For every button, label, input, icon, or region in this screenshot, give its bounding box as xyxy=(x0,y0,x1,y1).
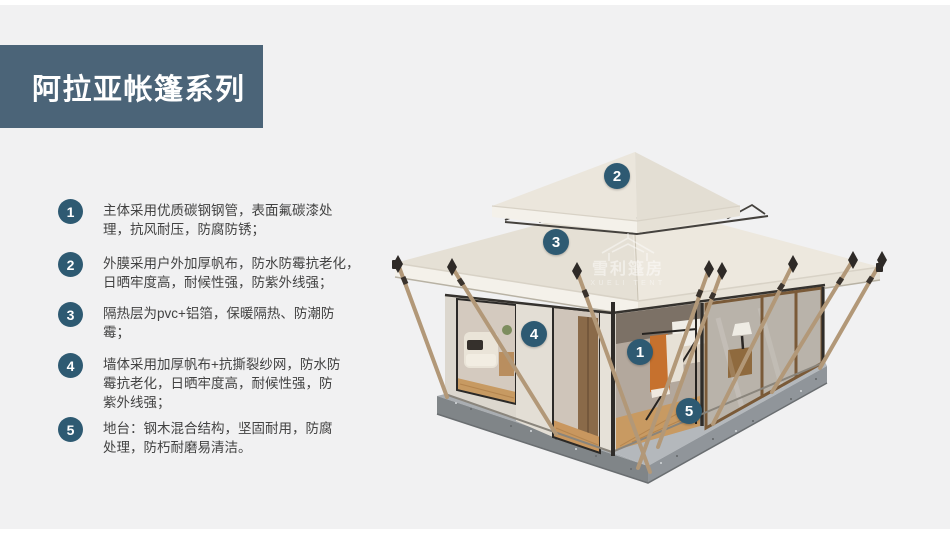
lamp-shade xyxy=(732,322,752,336)
feature-badge-3: 3 xyxy=(58,302,83,327)
feature-text-4-line-2: 霉抗老化，日晒牢度高，耐候性强，防 xyxy=(103,374,371,393)
feature-badge-4: 4 xyxy=(58,353,83,378)
feature-text-1-line-2: 理，抗风耐压，防腐防锈； xyxy=(103,220,371,239)
feature-text-5-line-2: 处理，防朽耐磨易清洁。 xyxy=(103,438,371,457)
left-window xyxy=(457,299,516,404)
left-sliding-door xyxy=(553,307,600,453)
bottom-margin-strip xyxy=(0,529,950,534)
page-title: 阿拉亚帐篷系列 xyxy=(32,66,246,108)
tent-marker-4: 4 xyxy=(521,321,547,347)
feature-text-4: 墙体采用加厚帆布+抗撕裂纱网，防水防 霉抗老化，日晒牢度高，耐候性强，防 紫外线… xyxy=(103,355,371,412)
feature-badge-5: 5 xyxy=(58,417,83,442)
tent-marker-3: 3 xyxy=(543,229,569,255)
hanging-garment-white xyxy=(666,333,684,383)
feature-text-2-line-1: 外膜采用户外加厚帆布，防水防霉抗老化， xyxy=(103,254,371,273)
feature-item-4: 4 墙体采用加厚帆布+抗撕裂纱网，防水防 霉抗老化，日晒牢度高，耐候性强，防 紫… xyxy=(58,353,371,412)
tent-marker-1: 1 xyxy=(627,339,653,365)
tent-marker-5: 5 xyxy=(676,398,702,424)
title-banner: 阿拉亚帐篷系列 xyxy=(0,45,263,128)
feature-text-4-line-3: 紫外线强； xyxy=(103,393,371,412)
feature-text-3: 隔热层为pvc+铝箔，保暖隔热、防潮防 霉； xyxy=(103,304,371,342)
top-margin-strip xyxy=(0,0,950,5)
feature-item-1: 1 主体采用优质碳钢钢管，表面氟碳漆处 理，抗风耐压，防腐防锈； xyxy=(58,199,371,239)
lamp-body xyxy=(742,336,743,349)
feature-text-3-line-1: 隔热层为pvc+铝箔，保暖隔热、防潮防 xyxy=(103,304,371,323)
plant xyxy=(502,325,512,335)
feature-badge-2: 2 xyxy=(58,252,83,277)
tent-marker-2: 2 xyxy=(604,163,630,189)
tent-photo: 雪利篷房 XUELI TENT xyxy=(385,138,950,510)
feature-text-3-line-2: 霉； xyxy=(103,323,371,342)
feature-text-2-line-2: 日晒牢度高，耐候性强，防紫外线强； xyxy=(103,273,371,292)
feature-text-4-line-1: 墙体采用加厚帆布+抗撕裂纱网，防水防 xyxy=(103,355,371,374)
feature-item-3: 3 隔热层为pvc+铝箔，保暖隔热、防潮防 霉； xyxy=(58,302,371,342)
feature-text-1-line-1: 主体采用优质碳钢钢管，表面氟碳漆处 xyxy=(103,201,371,220)
feature-text-2: 外膜采用户外加厚帆布，防水防霉抗老化， 日晒牢度高，耐候性强，防紫外线强； xyxy=(103,254,371,292)
watermark-cn: 雪利篷房 xyxy=(592,259,664,278)
feature-item-5: 5 地台：钢木混合结构，坚固耐用，防腐 处理，防朽耐磨易清洁。 xyxy=(58,417,371,457)
feature-text-5: 地台：钢木混合结构，坚固耐用，防腐 处理，防朽耐磨易清洁。 xyxy=(103,419,371,457)
watermark-en: XUELI TENT xyxy=(590,280,665,287)
feature-text-1: 主体采用优质碳钢钢管，表面氟碳漆处 理，抗风耐压，防腐防锈； xyxy=(103,201,371,239)
feature-badge-1: 1 xyxy=(58,199,83,224)
feature-text-5-line-1: 地台：钢木混合结构，坚固耐用，防腐 xyxy=(103,419,371,438)
feature-item-2: 2 外膜采用户外加厚帆布，防水防霉抗老化， 日晒牢度高，耐候性强，防紫外线强； xyxy=(58,252,371,292)
